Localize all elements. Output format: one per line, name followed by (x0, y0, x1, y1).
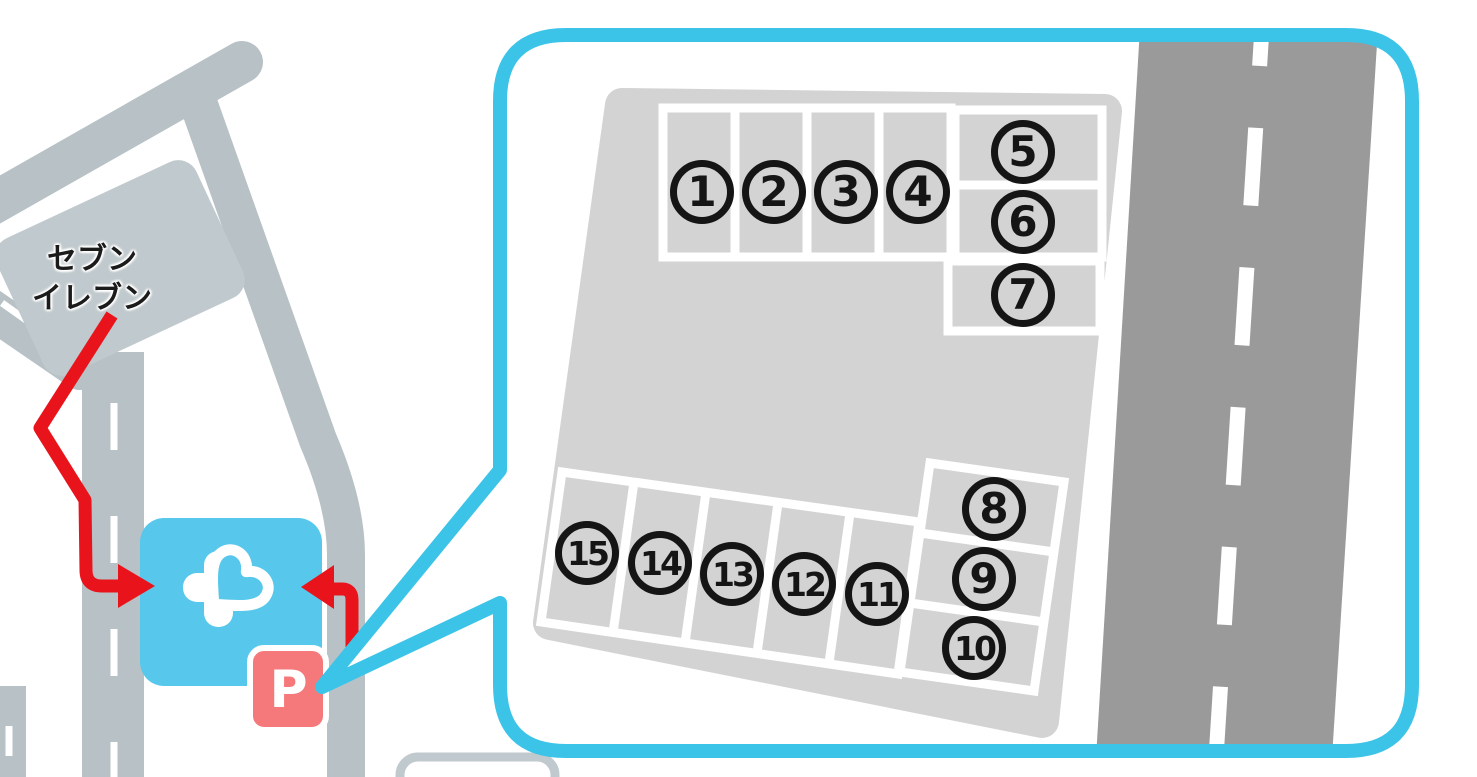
parking-space-15: 15 (555, 521, 619, 585)
map-illustration (0, 0, 1477, 777)
parking-space-6: 6 (991, 190, 1055, 254)
parking-space-14: 14 (628, 531, 692, 595)
landmark-label-line2: イレブン (2, 279, 182, 318)
landmark-label: セブン イレブン (2, 240, 182, 318)
parking-space-5: 5 (991, 120, 1055, 184)
parking-space-3: 3 (814, 160, 878, 224)
parking-space-4: 4 (886, 160, 950, 224)
parking-space-12: 12 (772, 552, 836, 616)
parking-space-8: 8 (962, 477, 1026, 541)
parking-space-9: 9 (952, 547, 1016, 611)
parking-badge-label: P (251, 651, 326, 729)
main-road (1096, 28, 1378, 758)
access-map-canvas: セブン イレブン P 1 2 3 4 5 6 7 8 9 10 11 12 13… (0, 0, 1477, 777)
parking-space-2: 2 (742, 160, 806, 224)
parking-space-7: 7 (991, 263, 1055, 327)
parking-space-10: 10 (942, 616, 1006, 680)
building-outline-bottom (400, 757, 555, 777)
parking-space-11: 11 (845, 562, 909, 626)
parking-space-13: 13 (700, 542, 764, 606)
landmark-label-line1: セブン (2, 240, 182, 279)
parking-space-1: 1 (670, 160, 734, 224)
